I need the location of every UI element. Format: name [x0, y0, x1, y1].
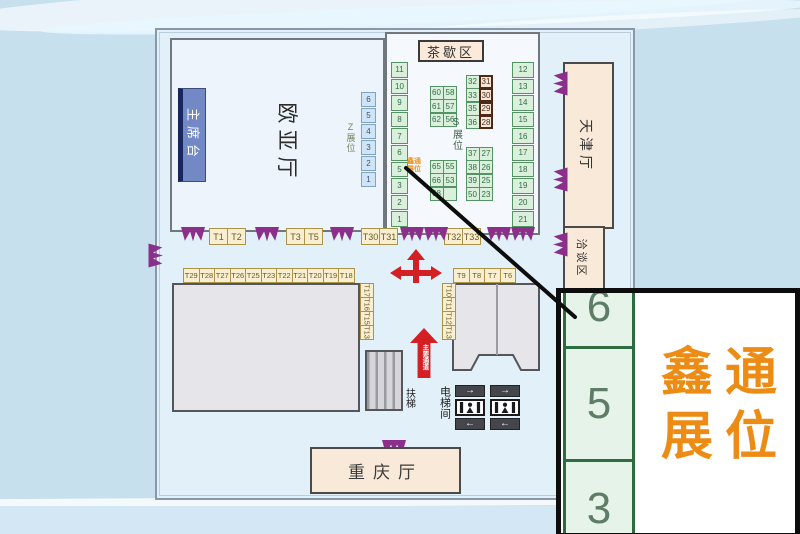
negotiation-area-label: 洽谈区: [574, 218, 590, 298]
booth-row: 6058: [430, 86, 457, 100]
booth-row: 6157: [430, 100, 457, 114]
booth-row: 3330: [466, 89, 493, 103]
main-stage-label: 主席台: [185, 108, 204, 162]
booth-cell: T30: [361, 228, 380, 245]
booth-cell: T3: [286, 228, 305, 245]
booth-cell: 4: [361, 124, 376, 139]
booth-cell: T2: [227, 228, 246, 245]
booth-cell: 30: [479, 88, 493, 102]
booth-cell: 27: [479, 147, 493, 161]
booth-cell: T15: [360, 311, 374, 326]
booth-cell: T13: [442, 325, 456, 340]
booth-cell: 68: [430, 187, 444, 201]
door-swag-icon: [511, 227, 535, 242]
s-zone-label: S展位: [450, 117, 461, 151]
booth-cell: T5: [304, 228, 323, 245]
booth-cell: 3: [563, 459, 635, 534]
booth-cell: T19: [323, 268, 340, 283]
door-swag-icon: [255, 227, 279, 242]
booth-cell: 1: [391, 211, 408, 227]
lower-left-hall: [172, 283, 360, 412]
booth-cell: 2: [361, 156, 376, 171]
booth-cell: 9: [391, 95, 408, 111]
booth-cell: 23: [479, 187, 493, 201]
booth-cell: 36: [466, 115, 480, 129]
booth-cell: 5: [563, 346, 635, 462]
lower-right-hall: [452, 283, 540, 371]
booth-cell: 65: [430, 160, 444, 174]
booth-cell: 37: [466, 147, 480, 161]
booth-cell: T28: [199, 268, 216, 283]
booth-cell: 3: [361, 140, 376, 155]
elevator-unit: → ←: [455, 385, 485, 430]
wall-swag-icon: [149, 244, 164, 268]
booth-cell: 29: [479, 102, 493, 116]
wall-swag-icon: [553, 233, 568, 257]
t-booth-group-4: T32T33: [445, 228, 481, 245]
booth-cell: 31: [479, 75, 493, 89]
elevator-person-icon: [459, 402, 481, 413]
booth-cell: 5: [391, 162, 408, 178]
wall-swag-icon: [553, 168, 568, 192]
booth-cell: T26: [230, 268, 247, 283]
door-swag-icon: [330, 227, 354, 242]
booth-cell: 19: [512, 178, 534, 194]
elevator-arrow-right: →: [455, 385, 485, 397]
booth-cell: T13: [360, 325, 374, 340]
t-booth-group-1: T1T2: [210, 228, 246, 245]
t-booth-col-left-hall: T17T16T15T13: [360, 284, 374, 340]
booth-cell: 6: [361, 92, 376, 107]
booth-row: 3628: [466, 116, 493, 130]
door-swag-icon: [424, 227, 448, 242]
booth-cell: T18: [338, 268, 355, 283]
xintong-mini-line2: 展位: [407, 166, 421, 174]
booth-row: 3231: [466, 75, 493, 89]
booth-cell: 60: [430, 86, 444, 100]
elevator-arrow-right: →: [490, 385, 520, 397]
hall-euroasia-label: 欧亚厅: [273, 88, 303, 198]
door-swag-icon: [487, 227, 511, 242]
booth-cell: T10: [442, 283, 456, 298]
s-booth-right-column: 12131415161718192021: [512, 62, 534, 227]
t-booth-group-3: T30T31: [362, 228, 398, 245]
booth-cell: 32: [466, 75, 480, 89]
booth-cell: 35: [466, 102, 480, 116]
booth-cell: T11: [442, 297, 456, 312]
elevator-car: [490, 399, 520, 416]
booth-cell: T27: [214, 268, 231, 283]
t-booth-row-right: T9T8T7T6: [454, 268, 516, 283]
booth-cell: 12: [512, 62, 534, 78]
booth-cell: 14: [512, 95, 534, 111]
booth-cell: 21: [512, 211, 534, 227]
booth-cell: 16: [512, 128, 534, 144]
booth-cell: 6: [391, 145, 408, 161]
escalator: [365, 350, 403, 411]
booth-cell: 8: [391, 112, 408, 128]
booth-cell: T8: [469, 268, 486, 283]
callout-booth-strip: 653: [563, 293, 635, 534]
door-swag-icon: [181, 227, 205, 242]
s-booth-left-column: 111098765321: [391, 62, 408, 227]
elevator-room-label: 电梯间: [438, 386, 450, 419]
booth-cell: 39: [466, 174, 480, 188]
booth-cell: 11: [391, 62, 408, 78]
booth-cell: T20: [307, 268, 324, 283]
booth-cell: T7: [484, 268, 501, 283]
wall-swag-icon: [553, 72, 568, 96]
t-booth-row-left: T29T28T27T26T25T23T22T21T20T19T18: [184, 268, 355, 283]
main-stage: 主席台: [178, 88, 206, 182]
elevator-person-icon: [494, 402, 516, 413]
s-booth-block-se: 3727382639255023: [466, 147, 493, 201]
booth-cell: 5: [361, 108, 376, 123]
booth-cell: 18: [512, 162, 534, 178]
escalator-label: 扶梯: [403, 388, 414, 408]
elevator-arrow-left: ←: [490, 418, 520, 430]
three-way-arrow-icon: [390, 249, 442, 283]
booth-cell: T17: [360, 283, 374, 298]
s-booth-block-sw: 6555665368: [430, 160, 457, 201]
booth-row: 3727: [466, 147, 493, 161]
booth-cell: 55: [443, 160, 457, 174]
main-aisle-label: 主要通道: [420, 344, 427, 370]
elevator-unit: → ←: [490, 385, 520, 430]
booth-row: 6555: [430, 160, 457, 174]
booth-cell: T9: [453, 268, 470, 283]
booth-cell: 33: [466, 88, 480, 102]
booth-cell: 57: [443, 99, 457, 113]
s-booth-block-ne: 3231333035293628: [466, 75, 493, 129]
hall-chongqing: 重庆厅: [310, 447, 461, 494]
elevator-car: [455, 399, 485, 416]
booth-cell: 10: [391, 79, 408, 95]
booth-row: 3925: [466, 174, 493, 188]
booth-cell: T21: [292, 268, 309, 283]
t-booth-group-2: T3T5: [287, 228, 323, 245]
booth-cell: T33: [462, 228, 481, 245]
booth-cell: 66: [430, 173, 444, 187]
booth-row: 6653: [430, 174, 457, 188]
brand-line2: 展位: [661, 405, 789, 469]
booth-cell: [443, 187, 457, 201]
booth-cell: 15: [512, 112, 534, 128]
booth-cell: 62: [430, 113, 444, 127]
booth-row: 3826: [466, 161, 493, 175]
door-swag-icon: [400, 227, 424, 242]
booth-cell: T23: [261, 268, 278, 283]
booth-cell: T16: [360, 297, 374, 312]
booth-cell: 20: [512, 195, 534, 211]
t-booth-col-right-hall: T10T11T12T13: [442, 284, 456, 340]
hall-tianjin-label: 天津厅: [576, 91, 596, 201]
booth-cell: T1: [209, 228, 228, 245]
zoom-callout-box: 653 鑫通 展位: [556, 288, 800, 534]
booth-cell: 53: [443, 173, 457, 187]
booth-cell: 26: [479, 160, 493, 174]
booth-cell: T12: [442, 311, 456, 326]
booth-cell: 13: [512, 79, 534, 95]
booth-cell: T6: [500, 268, 517, 283]
tea-break-area: 茶歇区: [418, 40, 484, 62]
xintong-brand-label: 鑫通 展位: [661, 341, 789, 469]
booth-cell: T29: [183, 268, 200, 283]
booth-cell: 50: [466, 187, 480, 201]
booth-cell: T25: [245, 268, 262, 283]
booth-cell: 3: [391, 178, 408, 194]
xintong-booth-mini-label: 鑫通 展位: [407, 158, 421, 174]
booth-cell: 25: [479, 174, 493, 188]
booth-cell: 61: [430, 99, 444, 113]
booth-cell: 17: [512, 145, 534, 161]
floor-plan-page: 主席台 欧亚厅 Z展位 654321 茶歇区 111098765321 1213…: [0, 0, 800, 534]
booth-cell: 58: [443, 86, 457, 100]
brand-line1: 鑫通: [661, 341, 789, 405]
booth-cell: 6: [563, 288, 635, 349]
booth-cell: 38: [466, 160, 480, 174]
elevator-arrow-left: ←: [455, 418, 485, 430]
booth-row: 5023: [466, 188, 493, 202]
xintong-mini-line1: 鑫通: [407, 158, 421, 166]
booth-cell: 28: [479, 115, 493, 129]
z-booth-column: 654321: [361, 92, 376, 187]
booth-cell: T22: [276, 268, 293, 283]
booth-cell: 2: [391, 195, 408, 211]
booth-cell: T31: [379, 228, 398, 245]
z-zone-label: Z展位: [345, 122, 354, 153]
booth-cell: 1: [361, 172, 376, 187]
booth-row: 68: [430, 187, 457, 201]
booth-row: 3529: [466, 102, 493, 116]
booth-cell: 7: [391, 128, 408, 144]
